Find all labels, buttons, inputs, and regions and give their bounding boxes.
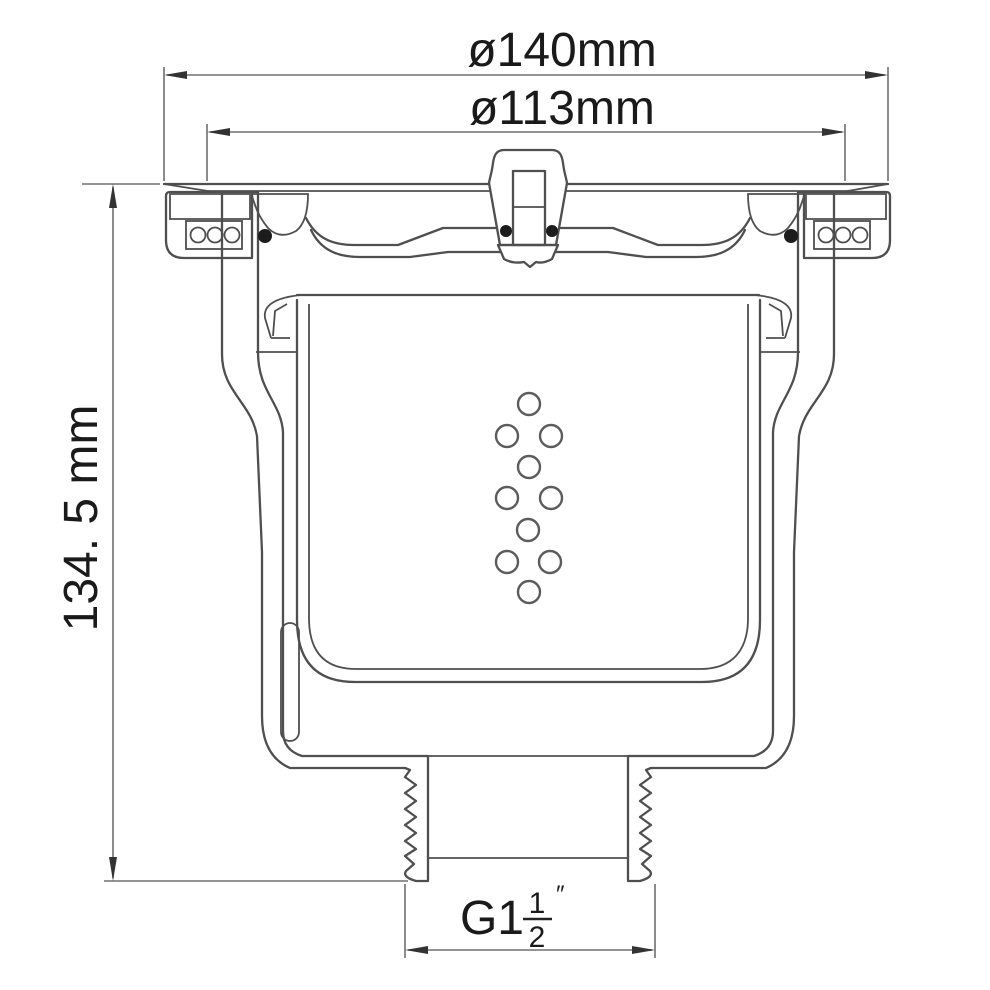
screw-o-ring-right <box>546 225 558 237</box>
gasket-strip-right <box>806 194 886 219</box>
clamp-inset-left <box>186 221 242 249</box>
gasket-bead-icon <box>853 228 868 243</box>
bucket-wall-inner <box>309 304 748 669</box>
arrowhead-icon <box>632 946 655 954</box>
thread-size-prefix: G1 <box>460 892 524 945</box>
arrowhead-icon <box>822 128 845 136</box>
bucket-hook-left <box>265 295 301 338</box>
o-ring-dot-left <box>258 229 272 243</box>
gasket-strip-left <box>170 194 250 219</box>
strainer-hole-icon <box>518 393 540 415</box>
arrowhead-icon <box>164 71 187 79</box>
screw-o-ring-left <box>500 225 512 237</box>
center-knob-assembly <box>489 150 567 267</box>
arrowhead-icon <box>109 857 117 881</box>
strainer-hole-icon <box>496 551 518 573</box>
gasket-bead-icon <box>836 228 851 243</box>
dimension-outlet-thread: G1 1 2 ″ <box>405 881 655 958</box>
overall-height-label: 134. 5 mm <box>55 405 108 632</box>
clamp-ring-right <box>748 192 890 258</box>
strainer-hole-icon <box>539 551 561 573</box>
inch-mark: ″ <box>556 881 565 908</box>
drawing-canvas: ø140mm ø113mm 134. 5 mm G1 1 2 ″ <box>0 0 990 990</box>
gasket-bead-icon <box>819 228 834 243</box>
rim-lip-right <box>842 184 888 192</box>
strainer-hole-icon <box>517 519 539 541</box>
strainer-hole-icon <box>540 425 562 447</box>
gasket-bead-icon <box>208 228 223 243</box>
thread-fraction-numerator: 1 <box>529 887 546 920</box>
arrowhead-icon <box>405 946 428 954</box>
clamp-inset-right <box>814 221 870 249</box>
bucket-wall-outer <box>297 300 760 682</box>
inner-diameter-label: ø113mm <box>469 82 655 135</box>
bell-upper-right <box>551 218 750 245</box>
gasket-bead-icon <box>191 228 206 243</box>
dimension-overall-height: 134. 5 mm <box>55 184 408 881</box>
arrowhead-icon <box>109 184 117 208</box>
clamp-ring-left <box>166 192 308 258</box>
gasket-arch-left <box>252 194 308 235</box>
strainer-hole-icon <box>518 581 540 603</box>
arrowhead-icon <box>207 128 230 136</box>
gasket-arch-right <box>748 194 804 235</box>
strainer-hole-icon <box>540 487 562 509</box>
thread-fraction-denominator: 2 <box>529 921 546 954</box>
outer-diameter-label: ø140mm <box>467 24 656 77</box>
screw-cap <box>498 245 558 267</box>
drain-technical-drawing: ø140mm ø113mm 134. 5 mm G1 1 2 ″ <box>0 0 990 990</box>
rim-lip-left <box>164 184 214 192</box>
arrowhead-icon <box>865 71 888 79</box>
strainer-hole-icon <box>518 456 540 478</box>
strainer-holes <box>496 393 562 603</box>
o-ring-dot-right <box>784 229 798 243</box>
strainer-hole-icon <box>496 425 518 447</box>
strainer-hole-icon <box>496 487 518 509</box>
gasket-bead-icon <box>225 228 240 243</box>
bell-upper-left <box>306 218 505 245</box>
